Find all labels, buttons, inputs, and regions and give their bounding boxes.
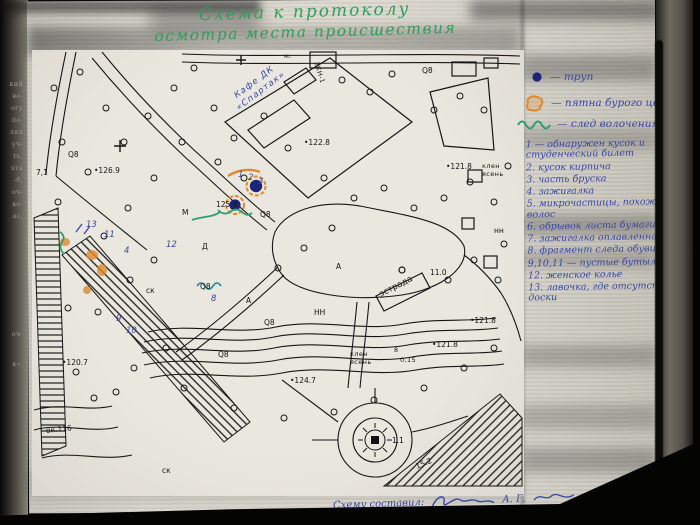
map-label: М — [182, 208, 188, 217]
elevation-label: •122.8 — [304, 138, 330, 147]
margin-text: огу — [11, 104, 23, 112]
tree-label: клен — [350, 350, 368, 358]
elevation-label: •121.8 — [470, 316, 496, 325]
site-map: 2КН-1 м. •122.8 •126.9 125.9 •121.8 •121… — [32, 50, 524, 496]
margin-text: ве- — [12, 200, 23, 208]
elevation-label: •120.7 — [62, 358, 88, 367]
map-label: нн — [494, 226, 504, 235]
tree-label: клен — [482, 162, 500, 170]
tree-label: 8 — [394, 346, 399, 354]
margin-text: в». — [12, 360, 23, 368]
map-linework — [32, 50, 524, 496]
legend-corpse-label: — труп — [550, 71, 593, 83]
binder-crease — [655, 40, 663, 496]
tree-label: 0,15 — [400, 356, 416, 364]
elevation-label: •124.7 — [290, 376, 316, 385]
map-label: 7,1 — [36, 168, 48, 177]
margin-text: -б, — [14, 176, 23, 184]
item-mark: 4 — [124, 246, 129, 256]
margin-text: этя — [11, 164, 23, 172]
tree-label: ясень — [350, 358, 372, 366]
elevation-label: •121.8 — [432, 340, 458, 349]
margin-text: оч- — [12, 330, 23, 338]
margin-text: ляя — [10, 128, 23, 136]
margin-text: уч- — [12, 140, 23, 148]
margin-text: пе- — [12, 116, 23, 124]
map-label: м. — [284, 52, 292, 60]
corpse-symbol — [531, 71, 545, 83]
map-label: А — [336, 262, 341, 271]
map-label: Q8 — [260, 210, 271, 219]
item-mark: 8 — [211, 294, 216, 304]
map-label: ск — [146, 286, 155, 295]
elevation-label: 125.9 — [216, 200, 237, 209]
margin-text: ть, — [13, 152, 23, 160]
item-mark: 10 — [126, 326, 137, 336]
item-mark: 12 — [166, 240, 177, 250]
map-label: 11.0 — [430, 268, 447, 277]
margin-text: ве- — [12, 92, 23, 100]
margin-text: ас, — [13, 212, 23, 220]
signature-initials: А. Г. — [502, 493, 526, 505]
map-label: Q8 — [264, 318, 275, 327]
margin-text: кий — [9, 80, 23, 88]
tree-label: ясень — [482, 170, 504, 178]
adjacent-page-edge: кий ве- огу пе- ляя уч- ть, этя -б, оч- … — [0, 0, 28, 525]
map-label: ск — [162, 466, 171, 475]
item-mark: 2 — [248, 173, 253, 183]
margin-text: оч- — [12, 188, 23, 196]
stain-symbol — [522, 93, 546, 113]
item-mark: 3 — [258, 177, 263, 187]
drag-trace-symbol — [516, 117, 552, 131]
item-mark: 13 — [86, 220, 97, 230]
map-label: Q8 — [422, 66, 433, 75]
item-mark: 1 — [238, 170, 243, 180]
fountain-sun-symbol — [358, 423, 392, 457]
legend-drag-label: — след волочения — [557, 118, 658, 130]
map-crosses — [114, 55, 246, 152]
map-label: НН — [314, 308, 325, 317]
legend-drag-row: — след волочения — [516, 117, 658, 131]
elevation-label: •126.9 — [94, 166, 120, 175]
item-mark: 11 — [104, 230, 115, 240]
item-mark: 9 — [116, 314, 121, 324]
map-label: А — [246, 296, 251, 305]
map-label: Q8 — [218, 350, 229, 359]
legend-corpse-row: — труп — [531, 71, 593, 83]
map-label: 1.1 — [392, 436, 404, 445]
map-label: Д — [202, 242, 208, 251]
map-label: Q8 — [200, 282, 211, 291]
map-label: Q8 — [68, 150, 79, 159]
elevation-label: •121.8 — [446, 162, 472, 171]
photo-scene: кий ве- огу пе- ляя уч- ть, этя -б, оч- … — [0, 0, 700, 525]
